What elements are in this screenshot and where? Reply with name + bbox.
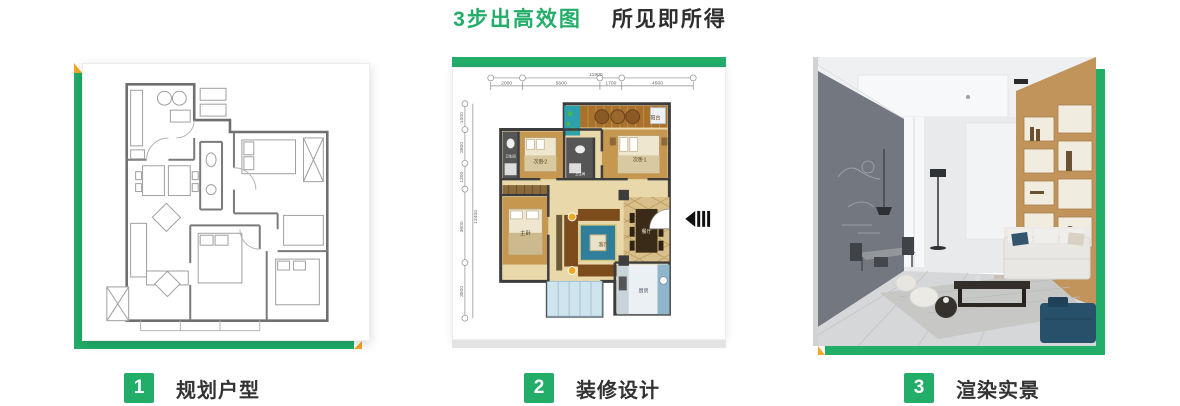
bathroom-middle: 卫生间 xyxy=(566,137,594,179)
step1-row: 1 规划户型 xyxy=(124,373,260,403)
step1-label: 规划户型 xyxy=(176,374,260,403)
green-frame-bottom xyxy=(825,346,1096,355)
svg-text:卫生间: 卫生间 xyxy=(575,171,586,176)
colored-floorplan-card: 2000 5600 11900 1700 4500 1000 2800 1300… xyxy=(452,67,726,340)
title-highlight: 3步出高效图 xyxy=(453,8,582,31)
step2-label: 装修设计 xyxy=(576,374,660,403)
svg-text:1300: 1300 xyxy=(459,171,465,182)
svg-text:客厅: 客厅 xyxy=(598,241,609,249)
svg-text:11900: 11900 xyxy=(589,72,603,78)
cad-floorplan-image xyxy=(83,64,369,340)
corner-accent xyxy=(74,63,82,73)
svg-text:3500: 3500 xyxy=(459,286,465,297)
living-room-render xyxy=(818,57,1096,346)
bedroom1: 次卧1 xyxy=(602,130,668,180)
svg-text:4500: 4500 xyxy=(652,80,663,86)
svg-text:2000: 2000 xyxy=(501,80,512,86)
cad-floorplan-card xyxy=(82,63,370,341)
step2-row: 2 装修设计 xyxy=(524,373,660,403)
svg-text:2800: 2800 xyxy=(459,142,465,153)
svg-text:次卧2: 次卧2 xyxy=(533,157,547,165)
title-rest: 所见即所得 xyxy=(612,8,727,31)
svg-text:12400: 12400 xyxy=(473,210,479,224)
dining-room: 餐厅 xyxy=(624,197,670,263)
bathroom-left: 卫生间 xyxy=(503,132,519,180)
step1-panel-cad-floorplan[interactable] xyxy=(74,57,370,349)
green-frame-bottom xyxy=(74,341,354,349)
colored-floorplan-image: 2000 5600 11900 1700 4500 1000 2800 1300… xyxy=(453,68,725,339)
gray-frame-bottom xyxy=(452,340,726,348)
dimension-left-labels: 1000 2800 1300 12400 3600 3500 xyxy=(459,112,479,297)
svg-text:阳台: 阳台 xyxy=(651,115,661,122)
section-title: 3步出高效图所见即所得 xyxy=(0,3,1180,33)
svg-text:卫生间: 卫生间 xyxy=(505,153,516,158)
green-frame-top xyxy=(452,57,726,67)
step2-panel-colored-floorplan[interactable]: 2000 5600 11900 1700 4500 1000 2800 1300… xyxy=(452,57,726,348)
svg-text:主卧: 主卧 xyxy=(520,229,531,237)
green-frame-left xyxy=(74,73,82,349)
corner-accent xyxy=(818,346,825,355)
kitchen: 厨房 xyxy=(617,265,670,315)
entrance-arrow-icon xyxy=(650,209,711,229)
svg-text:5600: 5600 xyxy=(556,80,567,86)
sofa xyxy=(1004,227,1090,279)
svg-text:3600: 3600 xyxy=(459,221,465,232)
living-room: 客厅 xyxy=(556,209,620,277)
corner-accent xyxy=(354,341,362,349)
svg-text:1700: 1700 xyxy=(605,80,616,86)
svg-text:1000: 1000 xyxy=(459,112,465,123)
green-frame-right xyxy=(1096,69,1105,355)
bottom-window xyxy=(547,281,602,316)
back-wall xyxy=(904,117,1018,273)
step3-row: 3 渲染实景 xyxy=(904,373,1040,403)
step3-panel-rendered-photo[interactable] xyxy=(813,57,1105,355)
furniture xyxy=(107,88,323,320)
step1-badge: 1 xyxy=(124,373,154,403)
step2-badge: 2 xyxy=(524,373,554,403)
bedroom2: 次卧2 xyxy=(519,132,565,180)
step3-label: 渲染实景 xyxy=(956,374,1040,403)
step3-badge: 3 xyxy=(904,373,934,403)
svg-text:厨房: 厨房 xyxy=(639,287,649,294)
svg-text:次卧1: 次卧1 xyxy=(633,155,647,163)
living-room-render-image xyxy=(818,57,1096,346)
